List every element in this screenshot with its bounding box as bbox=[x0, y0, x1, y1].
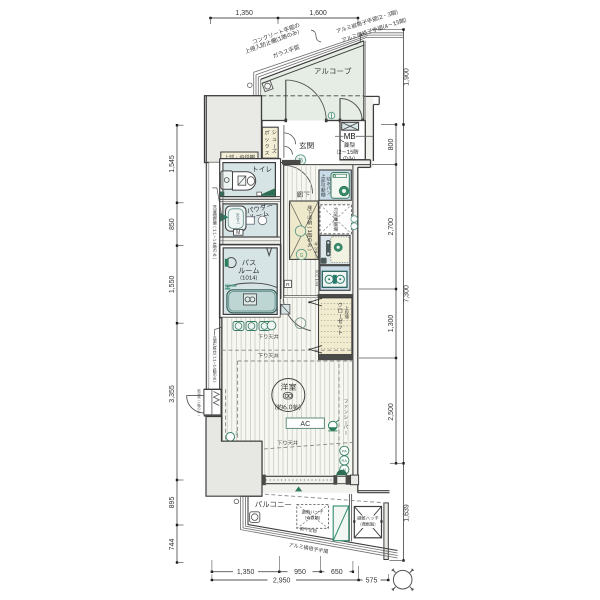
svg-text:800: 800 bbox=[388, 139, 395, 151]
svg-text:3,355: 3,355 bbox=[169, 385, 176, 403]
svg-text:1,550: 1,550 bbox=[169, 276, 176, 294]
svg-text:PA: PA bbox=[342, 448, 347, 453]
svg-text:R: R bbox=[286, 282, 290, 288]
svg-text:7,300: 7,300 bbox=[404, 285, 411, 303]
svg-text:895: 895 bbox=[169, 497, 176, 509]
svg-text:M: M bbox=[236, 230, 240, 236]
svg-text:2,700: 2,700 bbox=[388, 218, 395, 236]
svg-text:950: 950 bbox=[294, 569, 306, 576]
svg-text:650: 650 bbox=[331, 569, 343, 576]
svg-text:1,350: 1,350 bbox=[237, 569, 255, 576]
svg-text:AC: AC bbox=[300, 421, 310, 428]
svg-text:1,350: 1,350 bbox=[235, 10, 253, 17]
svg-text:MB: MB bbox=[344, 132, 356, 141]
svg-text:1,545: 1,545 bbox=[169, 155, 176, 173]
svg-text:850: 850 bbox=[169, 218, 176, 230]
svg-text:2,950: 2,950 bbox=[273, 578, 291, 585]
svg-text:1,600: 1,600 bbox=[309, 10, 327, 17]
svg-text:1,900: 1,900 bbox=[404, 68, 411, 86]
svg-text:1,639: 1,639 bbox=[404, 504, 411, 522]
svg-text:2,500: 2,500 bbox=[388, 403, 395, 421]
svg-text:575: 575 bbox=[366, 578, 378, 585]
svg-text:RA: RA bbox=[342, 458, 348, 463]
svg-text:1,300: 1,300 bbox=[388, 315, 395, 333]
svg-text:744: 744 bbox=[169, 539, 176, 551]
